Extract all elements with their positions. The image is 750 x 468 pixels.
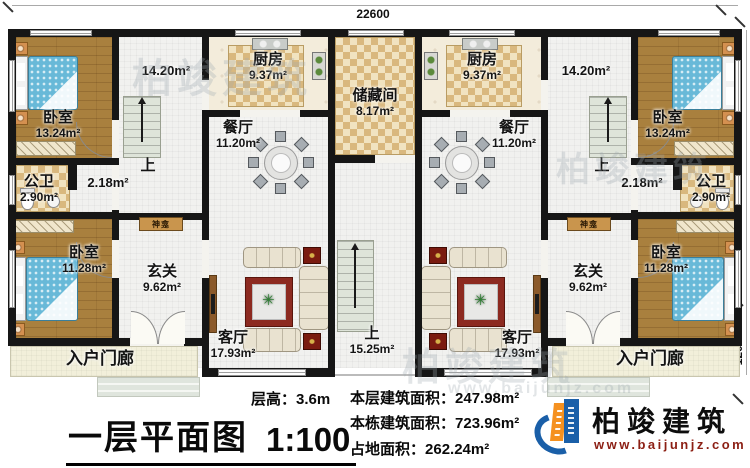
dimension-tick — [734, 16, 745, 27]
dimension-line-top — [12, 5, 738, 6]
room-area: 9.62m² — [569, 281, 607, 294]
room-area: 11.28m² — [644, 262, 688, 275]
bed — [672, 56, 722, 110]
room-label-bath-left: 公卫 2.90m² — [14, 174, 64, 204]
wall-segment — [8, 212, 119, 219]
door-opening — [450, 110, 510, 117]
room-label-stairs-center: 上 15.25m² — [342, 326, 402, 356]
entry-steps-right — [547, 377, 650, 397]
room-name: 储藏间 — [352, 88, 397, 105]
window — [9, 250, 15, 308]
side-table — [429, 333, 447, 350]
floor-height-value: 3.6m — [296, 391, 330, 408]
wall-segment — [631, 338, 742, 346]
stairs-up-label: 上 — [130, 154, 166, 175]
room-area: 13.24m² — [36, 127, 81, 140]
room-area: 2.90m² — [692, 191, 730, 204]
stat-building-area: 本栋建筑面积：723.96m² — [350, 412, 519, 433]
room-area: 2.18m² — [87, 176, 128, 191]
wall-segment — [631, 212, 742, 219]
chair — [456, 131, 467, 142]
door-opening — [541, 80, 548, 110]
room-name: 入户门廊 — [616, 349, 684, 368]
room-area: 14.20m² — [142, 64, 190, 79]
door-opening — [202, 240, 209, 278]
door-opening — [202, 80, 209, 110]
room-name: 厨房 — [253, 52, 283, 69]
tv-stand — [533, 275, 541, 333]
stat-label: 本栋建筑面积： — [350, 415, 455, 432]
room-label-living-left: 客厅 17.93m² — [200, 330, 266, 360]
room-label-bedroom-bottom-right: 卧室 11.28m² — [634, 245, 698, 275]
room-label-porch-right: 入户门廊 — [578, 349, 722, 368]
stat-value: 262.24m² — [425, 441, 489, 458]
wardrobe — [12, 220, 74, 233]
window — [449, 30, 515, 36]
door-opening — [375, 155, 415, 163]
room-name: 卧室 — [69, 245, 99, 262]
room-name: 餐厅 — [223, 120, 253, 137]
window — [9, 60, 15, 112]
entry-steps-left — [97, 377, 200, 397]
room-area: 9.37m² — [249, 69, 287, 82]
room-label-bath-right: 公卫 2.90m² — [686, 174, 736, 204]
stat-floor-area: 本层建筑面积：247.98m² — [350, 387, 519, 408]
plan-title: 一层平面图 — [68, 410, 248, 459]
logo-building-blue-icon — [564, 399, 579, 443]
window — [218, 369, 306, 376]
room-name: 客厅 — [218, 330, 248, 347]
side-table — [303, 333, 321, 350]
room-name: 公卫 — [696, 174, 726, 191]
stairs-up-label: 上 — [584, 154, 620, 175]
room-area: 11.20m² — [216, 137, 260, 150]
room-area: 11.28m² — [62, 262, 106, 275]
kitchen-sink — [462, 38, 498, 50]
chair — [429, 157, 440, 168]
window — [735, 60, 741, 112]
wall-segment — [8, 338, 119, 346]
wall-segment — [68, 158, 77, 190]
bed — [28, 56, 78, 110]
room-label-dining-left: 餐厅 11.20m² — [206, 120, 270, 150]
sofa — [421, 266, 451, 330]
room-label-bedroom-top-left: 卧室 13.24m² — [12, 110, 104, 140]
stat-land-area: 占地面积：262.24m² — [350, 438, 489, 459]
room-area: 2.18m² — [621, 176, 662, 191]
stairs-arrow-line — [354, 248, 356, 308]
chair — [456, 183, 467, 194]
shrine-label: 神龛 — [139, 217, 183, 231]
room-label-corridor-right: 2.18m² — [616, 176, 668, 191]
room-name: 卧室 — [652, 110, 682, 127]
room-label-kitchen-right: 厨房 9.37m² — [428, 52, 536, 82]
room-name: 玄关 — [573, 264, 603, 281]
room-name: 卧室 — [651, 245, 681, 262]
room-name: 厨房 — [467, 52, 497, 69]
stat-label: 占地面积： — [350, 441, 425, 458]
door-opening — [240, 110, 300, 117]
stairs-arrow-head — [604, 97, 612, 104]
chair — [248, 157, 259, 168]
room-area: 11.20m² — [492, 137, 536, 150]
door-opening — [541, 240, 548, 278]
wardrobe — [16, 141, 76, 156]
logo-website-url: www.baijunjz.com — [594, 437, 746, 452]
wardrobe — [676, 220, 738, 233]
sofa — [299, 266, 329, 330]
window — [735, 250, 741, 308]
opening-threshold — [335, 374, 415, 376]
room-name: 玄关 — [147, 264, 177, 281]
stat-value: 247.98m² — [455, 390, 519, 407]
plan-title-block: 一层平面图 1:100 — [66, 410, 356, 466]
shrine-label: 神龛 — [567, 217, 611, 231]
chair — [275, 131, 286, 142]
plan-scale: 1:100 — [266, 421, 350, 459]
room-area: 17.93m² — [211, 347, 256, 360]
floor-height-label: 层高： — [251, 391, 296, 408]
logo-company-name: 柏竣建筑 — [592, 400, 732, 440]
stairs-arrow-head — [351, 243, 359, 250]
room-area: 15.25m² — [350, 343, 395, 356]
side-table — [429, 247, 447, 264]
room-label-foyer-right: 玄关 9.62m² — [556, 264, 620, 294]
room-name: 公卫 — [24, 174, 54, 191]
stairs-arrow-line — [607, 102, 609, 142]
room-name: 卧室 — [43, 110, 73, 127]
room-label-hall-left: 14.20m² — [120, 64, 212, 79]
dimension-tick — [732, 393, 743, 404]
stat-value: 723.96m² — [455, 415, 519, 432]
window — [30, 30, 92, 36]
room-area: 2.90m² — [20, 191, 58, 204]
sofa — [449, 247, 507, 268]
dimension-line-right — [746, 30, 747, 375]
bed-headboard — [14, 56, 28, 110]
room-name: 入户门廊 — [66, 349, 134, 368]
dimension-width: 22600 — [338, 7, 408, 21]
room-label-kitchen-left: 厨房 9.37m² — [214, 52, 322, 82]
chair — [484, 157, 495, 168]
room-area: 14.20m² — [562, 64, 610, 79]
wall-segment — [8, 158, 119, 165]
plant-icon: ✳ — [262, 293, 275, 308]
sofa — [243, 247, 301, 268]
room-label-living-right: 客厅 17.93m² — [484, 330, 550, 360]
wardrobe — [674, 141, 734, 156]
room-area: 17.93m² — [495, 347, 540, 360]
room-area: 9.37m² — [463, 69, 501, 82]
side-table — [303, 247, 321, 264]
room-name: 上 — [364, 326, 379, 343]
room-label-bedroom-bottom-left: 卧室 11.28m² — [52, 245, 116, 275]
stairs-arrow-line — [141, 102, 143, 142]
room-label-storage: 储藏间 8.17m² — [332, 88, 418, 118]
room-area: 13.24m² — [645, 127, 690, 140]
dimension-tick — [2, 1, 13, 12]
dining-table — [445, 146, 479, 180]
chair — [303, 157, 314, 168]
dimension-tick — [715, 4, 726, 15]
window — [658, 30, 720, 36]
dining-table — [264, 146, 298, 180]
floor-height: 层高：3.6m — [251, 388, 330, 409]
door-opening — [112, 120, 119, 158]
room-label-foyer-left: 玄关 9.62m² — [130, 264, 194, 294]
floor-plan-page: 22600 9800 1200 — [0, 0, 750, 468]
room-name: 客厅 — [502, 330, 532, 347]
stairs-arrow-head — [138, 97, 146, 104]
room-label-hall-right: 14.20m² — [540, 64, 632, 79]
window — [444, 369, 532, 376]
room-area: 9.62m² — [143, 281, 181, 294]
wall-segment — [631, 158, 742, 165]
window — [235, 30, 301, 36]
tv-stand — [209, 275, 217, 333]
window — [348, 30, 404, 36]
room-area: 8.17m² — [356, 105, 394, 118]
room-label-porch-left: 入户门廊 — [28, 349, 172, 368]
room-name: 餐厅 — [499, 120, 529, 137]
room-label-bedroom-top-right: 卧室 13.24m² — [620, 110, 715, 140]
plant-icon: ✳ — [474, 293, 487, 308]
room-label-corridor-left: 2.18m² — [82, 176, 134, 191]
wall-segment — [673, 158, 682, 190]
room-label-dining-right: 餐厅 11.20m² — [482, 120, 546, 150]
kitchen-sink — [252, 38, 288, 50]
chair — [275, 183, 286, 194]
stat-label: 本层建筑面积： — [350, 390, 455, 407]
